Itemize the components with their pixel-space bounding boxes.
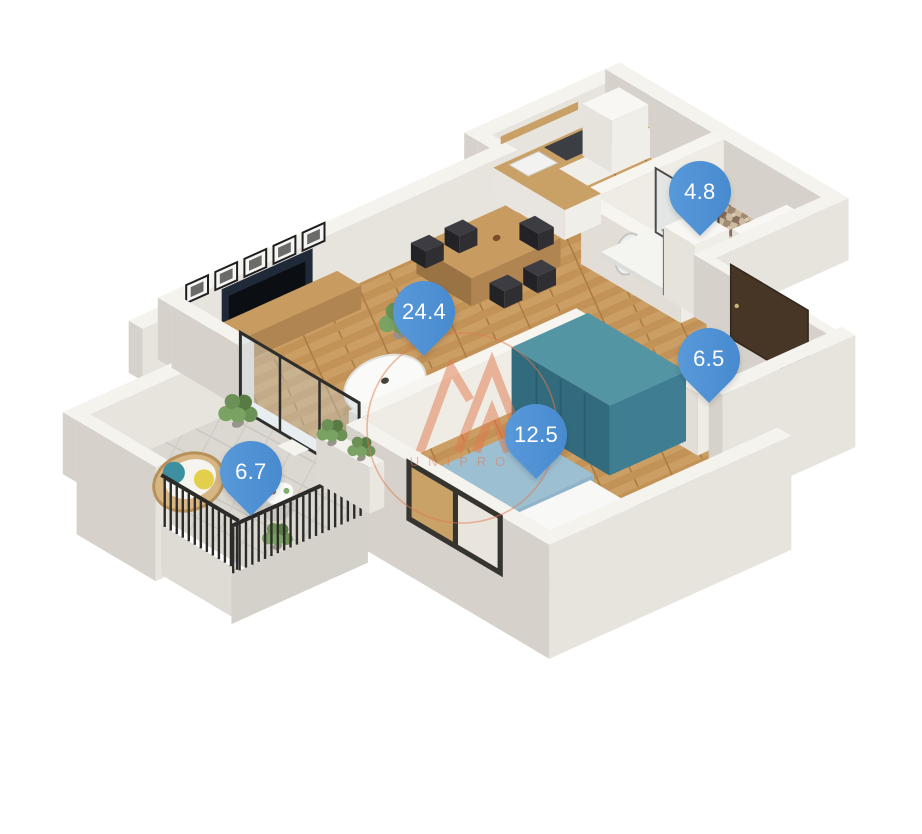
area-value-hallway: 6.5 xyxy=(693,346,724,372)
area-value-bathroom: 4.8 xyxy=(684,179,715,205)
floorplan-3d: UNIPRO xyxy=(0,0,922,834)
watermark-brand: UNIPRO xyxy=(410,454,515,469)
area-value-balcony: 6.7 xyxy=(235,459,266,485)
area-value-bedroom: 12.5 xyxy=(514,422,558,448)
floorplan-stage: UNIPRO 4.8 24.4 6.5 12.5 6.7 xyxy=(0,0,922,834)
area-value-living-room: 24.4 xyxy=(402,299,446,325)
